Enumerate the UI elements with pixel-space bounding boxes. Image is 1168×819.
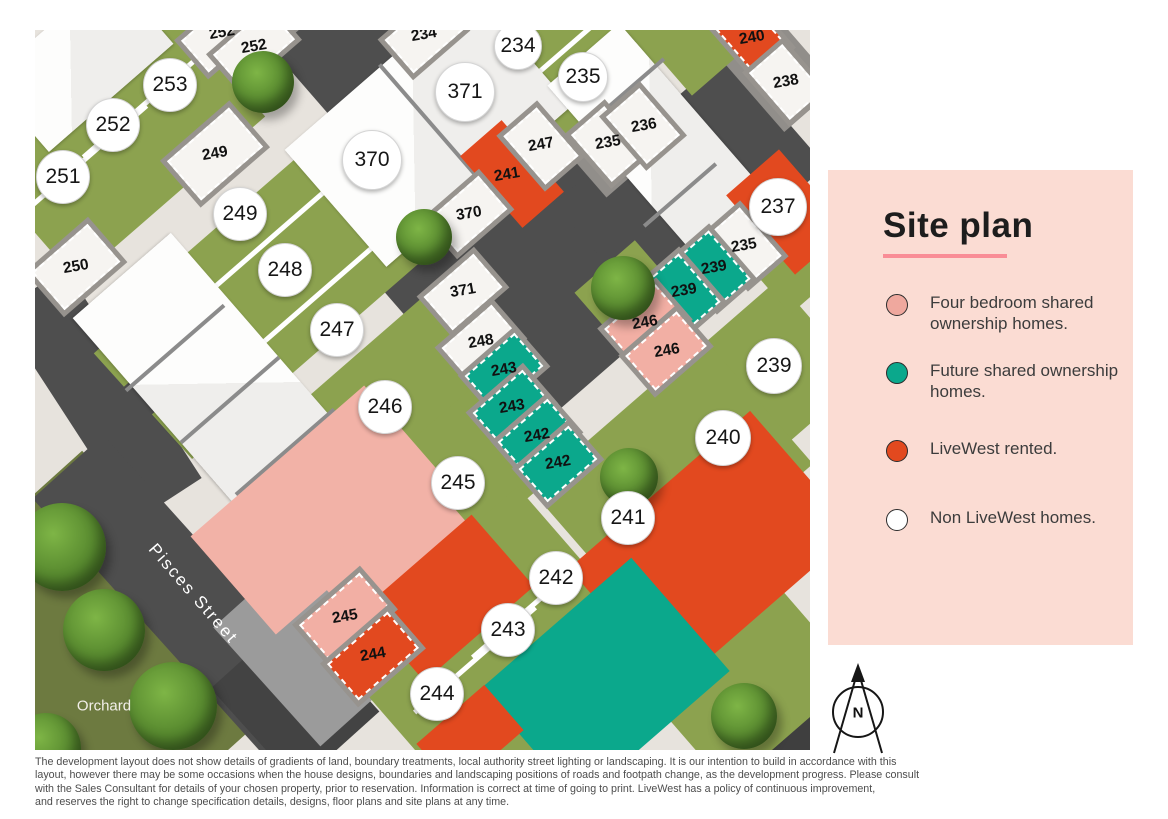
plot-number: 240 [705, 426, 740, 450]
plot-marker: 248 [258, 243, 312, 297]
compass-north-icon: N [818, 660, 898, 755]
future-shared-swatch-icon [886, 362, 908, 384]
plot-marker: 243 [481, 603, 535, 657]
plot-number: 235 [565, 65, 600, 89]
plot-marker: 249 [213, 187, 267, 241]
legend-item-label: Future shared ownership homes. [930, 360, 1130, 402]
plot-number: 249 [222, 202, 257, 226]
plot-marker: 245 [431, 456, 485, 510]
plot-marker: 237 [749, 178, 807, 236]
plot-number: 234 [500, 34, 535, 58]
plot-number: 251 [45, 165, 80, 189]
legend-item: Four bedroom shared ownership homes. [886, 292, 1130, 334]
plot-number: 241 [610, 506, 645, 530]
plot-number: 237 [760, 195, 795, 219]
disclaimer-line: layout, however there may be some occasi… [35, 769, 950, 782]
plot-number: 239 [756, 354, 791, 378]
legend-item-label: Non LiveWest homes. [930, 507, 1096, 528]
disclaimer-line: with the Sales Consultant for details of… [35, 783, 950, 796]
disclaimer-line: The development layout does not show det… [35, 756, 950, 769]
plot-marker: 247 [310, 303, 364, 357]
plot-marker: 251 [36, 150, 90, 204]
compass-north-label: N [853, 705, 864, 722]
plot-marker: 252 [86, 98, 140, 152]
legend-item-label: LiveWest rented. [930, 438, 1057, 459]
plot-marker: 244 [410, 667, 464, 721]
tree [129, 662, 217, 750]
disclaimer-text: The development layout does not show det… [35, 756, 950, 810]
plot-marker: 246 [358, 380, 412, 434]
plot-number: 371 [447, 80, 482, 104]
plot-number: 246 [367, 395, 402, 419]
plot-marker: 240 [695, 410, 751, 466]
legend-item-label: Four bedroom shared ownership homes. [930, 292, 1130, 334]
livewest-rented-swatch-icon [886, 440, 908, 462]
tree [396, 209, 452, 265]
tree [591, 256, 655, 320]
four-bed-shared-swatch-icon [886, 294, 908, 316]
plot-marker: 242 [529, 551, 583, 605]
tree [63, 589, 145, 671]
area-label: Orchard [77, 698, 131, 715]
plot-number: 245 [440, 471, 475, 495]
plot-marker: 370 [342, 130, 402, 190]
tree [232, 51, 294, 113]
legend-item: Non LiveWest homes. [886, 507, 1096, 531]
site-plan-map: Pisces Street Orchard 252 252 234 249 25… [35, 30, 810, 750]
plot-number: 370 [354, 148, 389, 172]
non-livewest-swatch-icon [886, 509, 908, 531]
legend-title: Site plan [883, 206, 1033, 246]
plot-number: 253 [152, 73, 187, 97]
plot-number: 252 [95, 113, 130, 137]
plot-number: 248 [267, 258, 302, 282]
plot-marker: 253 [143, 58, 197, 112]
legend-item: Future shared ownership homes. [886, 360, 1130, 402]
plot-marker: 241 [601, 491, 655, 545]
plot-marker: 239 [746, 338, 802, 394]
plot-marker: 371 [435, 62, 495, 122]
plot-number: 244 [419, 682, 454, 706]
legend-panel: Site plan Four bedroom shared ownership … [828, 170, 1133, 645]
site-plan-page: Pisces Street Orchard 252 252 234 249 25… [0, 0, 1168, 819]
plot-number: 247 [319, 318, 354, 342]
disclaimer-line: and reserves the right to change specifi… [35, 796, 950, 809]
plot-number: 242 [538, 566, 573, 590]
plot-number: 243 [490, 618, 525, 642]
legend-item: LiveWest rented. [886, 438, 1057, 462]
plot-marker: 235 [558, 52, 608, 102]
legend-title-underline [883, 254, 1007, 258]
tree [711, 683, 777, 749]
